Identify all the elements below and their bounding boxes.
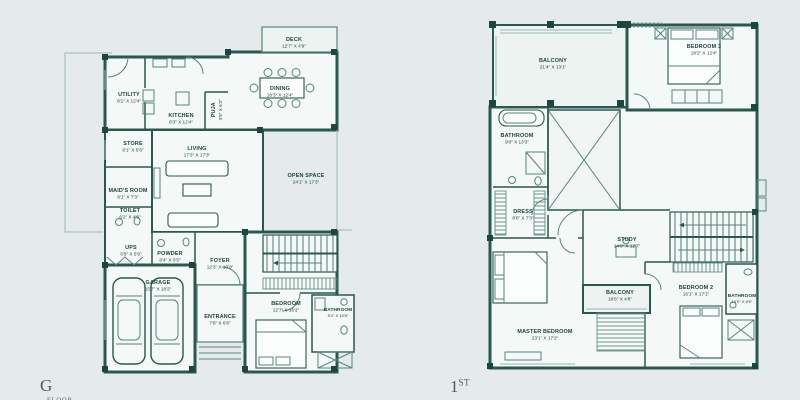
first-floor-number: 1 bbox=[450, 377, 459, 396]
bedroom2-bed bbox=[680, 306, 722, 358]
ground-staircase bbox=[263, 235, 337, 289]
ground-bed bbox=[256, 320, 306, 368]
open-hatch-band bbox=[597, 313, 645, 351]
dress-wardrobe-right bbox=[534, 191, 545, 235]
first-floor-plan bbox=[487, 21, 766, 369]
ground-bathroom-area bbox=[312, 295, 354, 352]
balcony-large bbox=[493, 25, 627, 107]
entrance-steps bbox=[199, 347, 241, 359]
garage-car-right bbox=[151, 278, 183, 364]
dress-wardrobe-left bbox=[495, 191, 506, 235]
entrance-porch bbox=[197, 285, 243, 342]
garage-car-left bbox=[113, 278, 145, 364]
deck-area bbox=[262, 27, 337, 52]
ground-floor-title: G bbox=[40, 376, 52, 396]
ground-floor-word-clipped: FLOOR bbox=[47, 396, 73, 400]
open-space-boundary bbox=[337, 130, 352, 230]
floorplan-drawing bbox=[0, 0, 800, 400]
floorplan-page: DECK 12'7" X 4'9" UTILITY 8'1" X 12'4" K… bbox=[0, 0, 800, 400]
first-floor-ordinal: ST bbox=[459, 377, 471, 387]
first-floor-title: 1ST bbox=[450, 377, 470, 397]
service-column bbox=[105, 130, 155, 265]
ground-floor-plan bbox=[65, 27, 354, 372]
ground-floor-letter: G bbox=[40, 376, 52, 395]
